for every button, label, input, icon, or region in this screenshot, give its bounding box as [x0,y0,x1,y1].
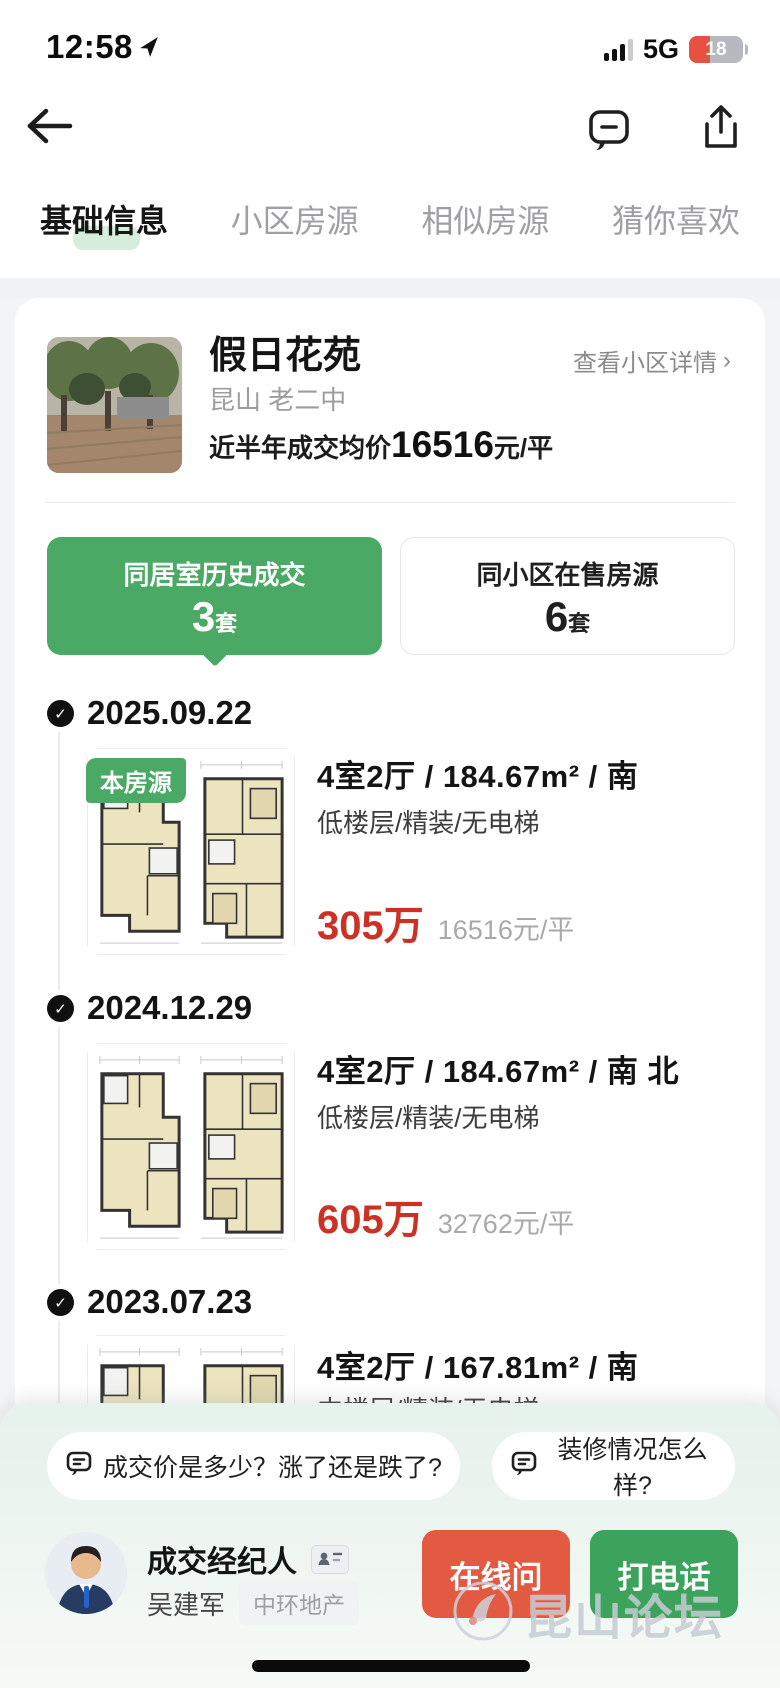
online-ask-button[interactable]: 在线问 [422,1530,570,1618]
agent-role-row: 成交经纪人 [147,1537,349,1581]
listing-title[interactable]: 4室2厅 / 184.67m² / 南 北 [317,1046,679,1091]
tab-recommended[interactable]: 猜你喜欢 [612,196,740,242]
navbar [0,92,780,172]
avg-price-label: 近半年成交均价 [209,428,391,465]
community-detail-link[interactable]: 查看小区详情› [567,342,737,379]
this-property-badge: 本房源 [86,758,186,803]
community-photo[interactable] [47,337,182,473]
deal-price: 305万 [317,906,424,946]
listing-price-row: 605万 32762元/平 [317,1200,574,1241]
back-button[interactable] [24,106,74,149]
signal-strength-icon [604,39,633,61]
unit-price: 16516元/平 [438,908,575,947]
network-type: 5G [643,34,679,65]
chat-bubble-icon [510,1449,538,1484]
timeline-line [58,1027,60,1284]
unit-price: 32762元/平 [438,1202,575,1241]
section-separator [0,278,780,298]
divider [45,502,735,503]
listing-floorplan-thumb[interactable]: 本房源 [87,748,295,955]
deal-date: 2025.09.22 [87,694,252,732]
agent-role: 成交经纪人 [147,1537,297,1581]
listing-floorplan-thumb[interactable] [87,1043,295,1250]
listing-price-row: 305万 16516元/平 [317,906,574,947]
agent-avatar[interactable] [45,1532,127,1614]
listing-tags: 低楼层/精装/无电梯 [317,1098,539,1135]
tab-basic-info[interactable]: 基础信息 [40,196,168,242]
feedback-comment-button[interactable] [588,108,630,155]
tab-similar-listings[interactable]: 相似房源 [421,196,549,242]
timeline-check-icon: ✓ [47,1289,74,1316]
timeline-check-icon: ✓ [47,700,74,727]
timeline-line [58,1321,60,1406]
location-services-icon [138,36,160,63]
deal-date: 2024.12.29 [87,989,252,1027]
same-layout-history-deals-card[interactable]: 同居室历史成交 3套 [47,537,382,655]
quick-question-renovation-pill[interactable]: 装修情况怎么样? [492,1432,735,1500]
battery-nub [745,44,748,55]
share-button[interactable] [700,104,742,155]
deal-price: 605万 [317,1200,424,1240]
chevron-right-icon: › [723,347,731,375]
agent-name: 吴建军 [147,1585,225,1622]
avg-price-unit: 元/平 [494,428,553,465]
listing-tags: 低楼层/精装/无电梯 [317,803,539,840]
call-button[interactable]: 打电话 [590,1530,738,1618]
listing-title[interactable]: 4室2厅 / 184.67m² / 南 [317,751,638,796]
home-indicator[interactable] [252,1660,530,1672]
battery-level: 18 [689,36,743,63]
detail-tab-bar: 基础信息 小区房源 相似房源 猜你喜欢 [0,174,780,278]
deal-date: 2023.07.23 [87,1283,252,1321]
quick-question-price-pill[interactable]: 成交价是多少？涨了还是跌了? [47,1432,460,1500]
timeline-line [58,732,60,990]
timeline-check-icon: ✓ [47,995,74,1022]
agent-company-tag: 中环地产 [239,1581,359,1625]
avg-price-value: 16516 [391,424,494,466]
tab-community-listings[interactable]: 小区房源 [231,196,359,242]
agent-name-row: 吴建军 中环地产 [147,1581,359,1625]
community-name: 假日花苑 [209,324,361,379]
avg-price-row: 近半年成交均价 16516 元/平 [209,424,553,466]
status-right-cluster: 5G 18 [604,34,748,65]
battery-icon: 18 [689,36,743,63]
agent-id-card-icon [311,1545,349,1574]
contact-bottom-sheet: 成交价是多少？涨了还是跌了? 装修情况怎么样? 成交经纪人 [0,1403,780,1688]
status-time: 12:58 [46,28,133,66]
app-screen: 12:58 5G 18 [0,0,780,1688]
community-location: 昆山 老二中 [209,380,346,417]
listing-title[interactable]: 4室2厅 / 167.81m² / 南 [317,1342,638,1387]
same-community-on-sale-card[interactable]: 同小区在售房源 6套 [400,537,735,655]
chat-bubble-icon [65,1449,93,1484]
